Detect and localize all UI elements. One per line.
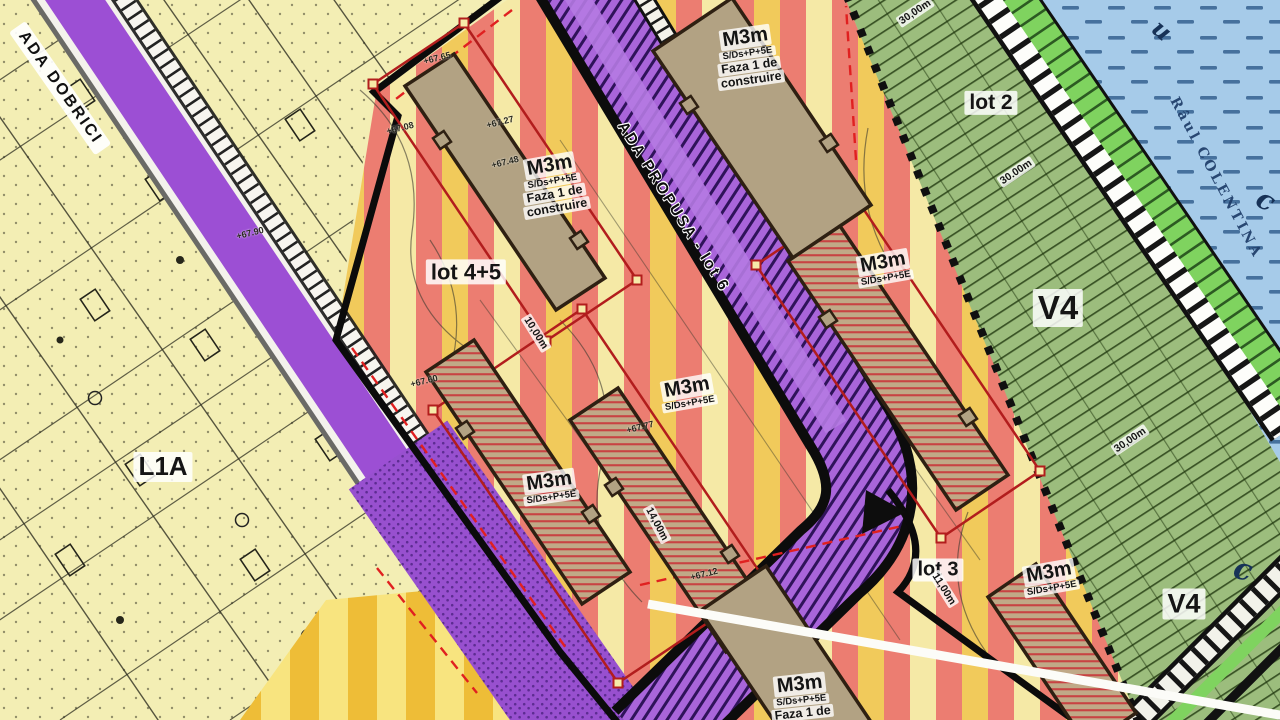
map-layers: [0, 0, 1280, 720]
zone-label-l1a: L1A: [133, 452, 192, 482]
zone-label-lot2: lot 2: [964, 91, 1017, 115]
zoning-map-canvas: ADA DOBRICI ADA PROPUSA - lot 6 Râul COL…: [0, 0, 1280, 720]
zone-label-v4-lower: V4: [1162, 588, 1205, 619]
zone-label-v4-upper: V4: [1033, 289, 1083, 327]
m3m-block-top: M3m S/Ds+P+5E Faza 1 de construire: [710, 22, 785, 93]
m3m-block-lot45: M3m S/Ds+P+5E Faza 1 de construire: [515, 149, 592, 222]
m3m-block-bottom: M3m S/Ds+P+5E Faza 1 de: [768, 670, 835, 720]
zone-label-lot45: lot 4+5: [426, 259, 506, 284]
